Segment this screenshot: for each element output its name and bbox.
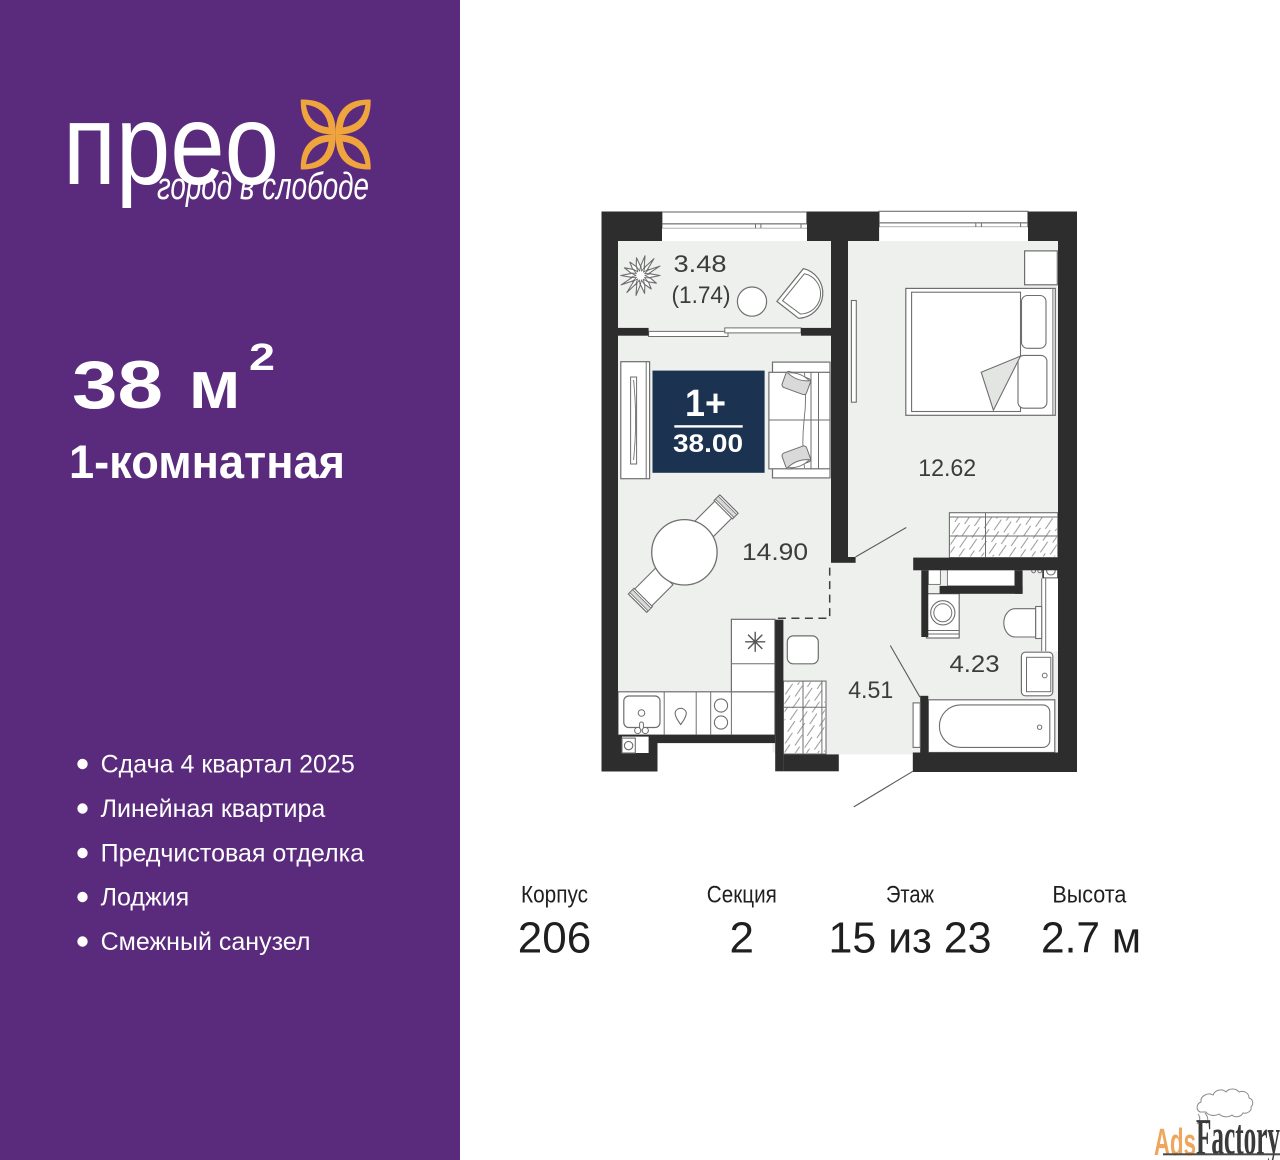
svg-text:4.23: 4.23 [950, 651, 1000, 678]
svg-text:2: 2 [249, 337, 275, 379]
svg-text:Лоджия: Лоджия [101, 884, 190, 912]
svg-text:Линейная квартира: Линейная квартира [101, 795, 326, 823]
svg-text:(1.74): (1.74) [672, 282, 731, 309]
svg-text:4.51: 4.51 [848, 677, 893, 704]
svg-text:12.62: 12.62 [918, 455, 976, 482]
svg-text:2.7 м: 2.7 м [1041, 914, 1141, 963]
svg-text:38.00: 38.00 [673, 430, 743, 458]
svg-text:м: м [189, 347, 241, 423]
svg-text:3.48: 3.48 [674, 251, 727, 278]
svg-text:206: 206 [518, 914, 591, 963]
svg-text:Factory: Factory [1196, 1109, 1280, 1160]
svg-text:Сдача 4 квартал 2025: Сдача 4 квартал 2025 [101, 751, 355, 779]
svg-text:Корпус: Корпус [521, 882, 588, 909]
svg-text:Смежный санузел: Смежный санузел [101, 928, 311, 956]
svg-text:1-комнатная: 1-комнатная [69, 435, 345, 488]
svg-text:Высота: Высота [1052, 882, 1127, 909]
svg-text:1+: 1+ [685, 383, 726, 425]
svg-text:Секция: Секция [707, 882, 777, 909]
svg-text:38: 38 [72, 347, 163, 423]
svg-text:14.90: 14.90 [742, 539, 808, 566]
svg-text:город в слободе: город в слободе [157, 166, 369, 208]
svg-text:Этаж: Этаж [886, 882, 934, 909]
svg-text:15 из 23: 15 из 23 [829, 914, 992, 963]
svg-text:2: 2 [730, 914, 754, 963]
svg-text:Предчистовая отделка: Предчистовая отделка [101, 840, 364, 868]
